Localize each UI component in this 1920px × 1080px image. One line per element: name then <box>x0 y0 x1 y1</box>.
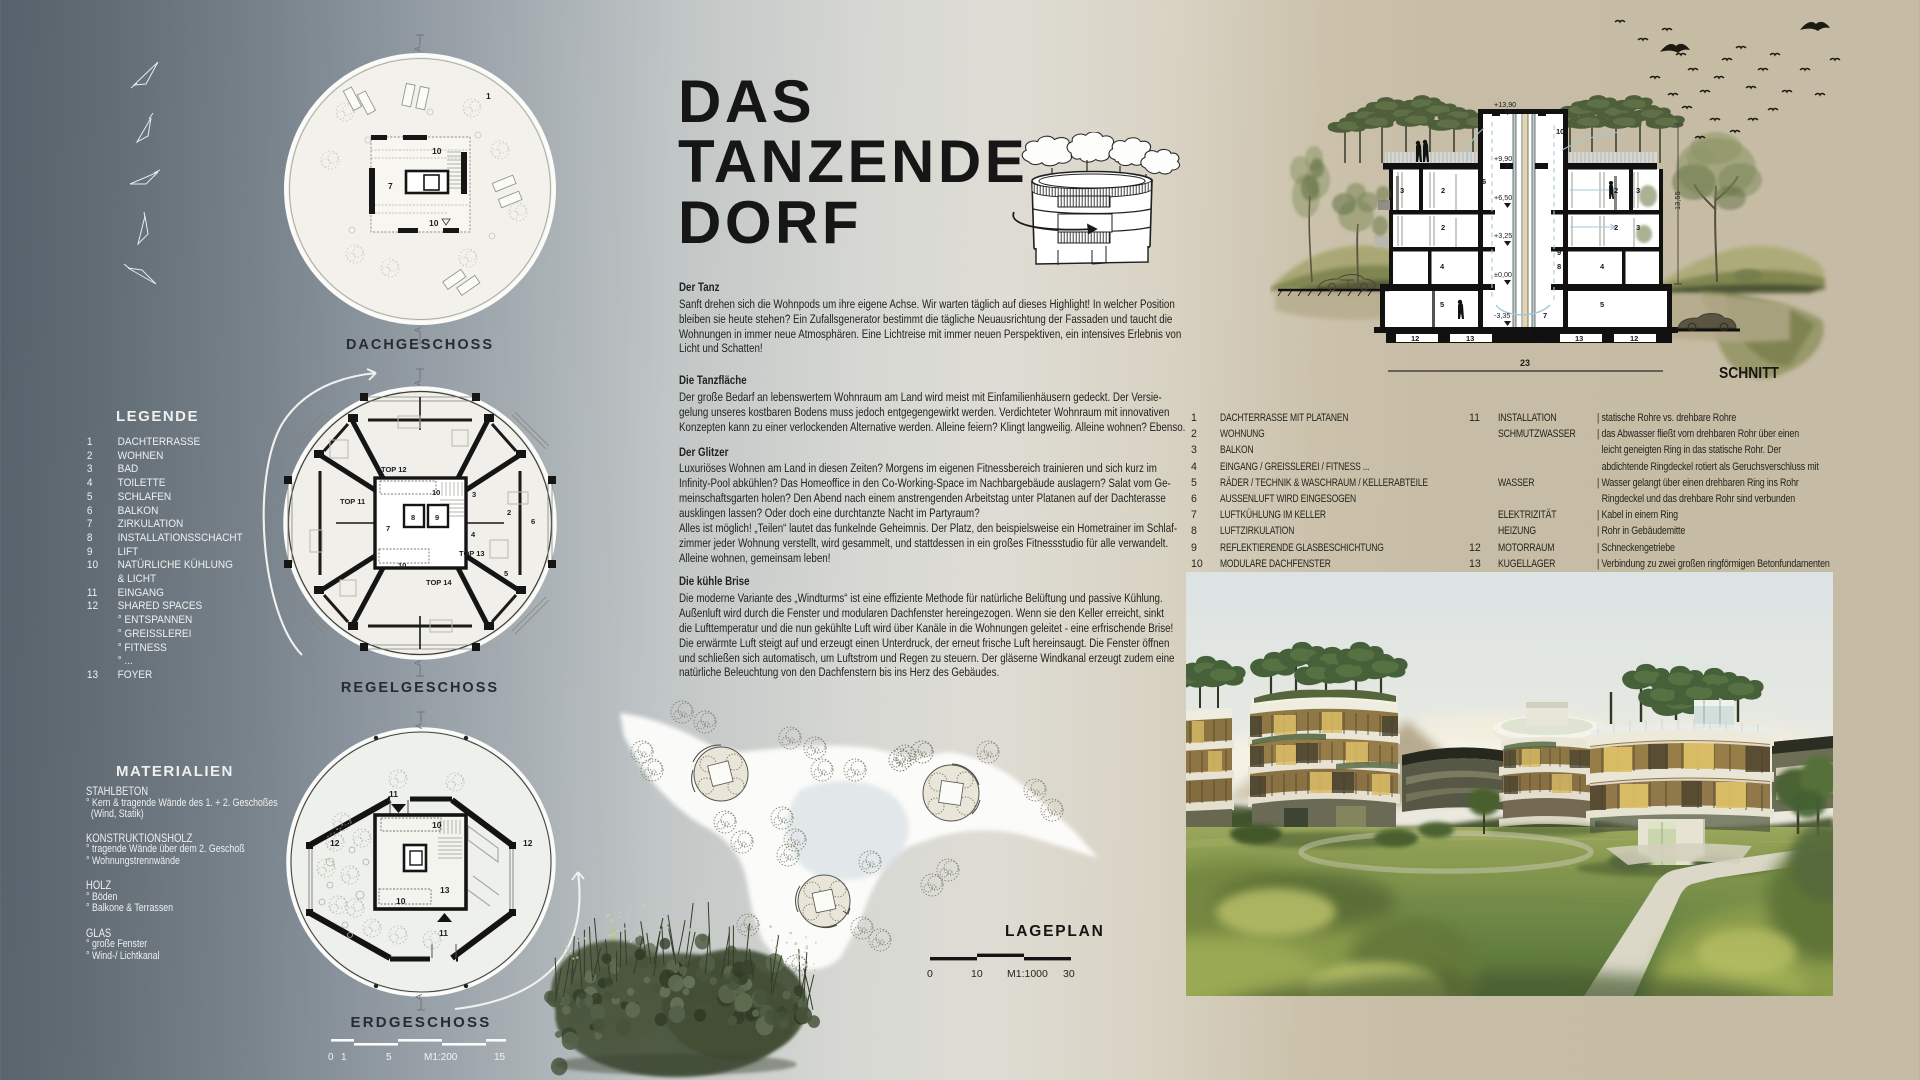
svg-text:10: 10 <box>1556 127 1564 136</box>
svg-text:9: 9 <box>435 513 439 522</box>
svg-text:REGELGESCHOSS: REGELGESCHOSS <box>341 680 499 696</box>
svg-text:30: 30 <box>1063 968 1075 980</box>
svg-text:TOP 11: TOP 11 <box>340 497 365 506</box>
svg-text:1: 1 <box>341 1052 347 1063</box>
svg-text:M1:200: M1:200 <box>424 1052 458 1063</box>
svg-text:A: A <box>414 994 424 1000</box>
svg-text:0: 0 <box>328 1052 334 1063</box>
svg-text:A: A <box>413 380 423 386</box>
svg-text:13: 13 <box>1466 334 1474 343</box>
svg-text:A: A <box>413 46 423 52</box>
svg-text:A: A <box>413 660 423 666</box>
svg-text:3: 3 <box>472 490 476 499</box>
svg-text:2: 2 <box>1614 223 1618 232</box>
svg-text:12: 12 <box>330 838 340 848</box>
svg-text:7: 7 <box>1543 311 1547 320</box>
svg-text:10: 10 <box>971 968 983 980</box>
svg-text:15: 15 <box>494 1052 506 1063</box>
svg-text:7: 7 <box>386 524 390 533</box>
svg-text:+6,50: +6,50 <box>1494 193 1512 202</box>
svg-text:11: 11 <box>439 928 448 938</box>
svg-text:3: 3 <box>1400 186 1404 195</box>
svg-text:13: 13 <box>440 885 450 895</box>
svg-text:12: 12 <box>1630 334 1638 343</box>
svg-text:TOP 14: TOP 14 <box>426 578 452 587</box>
svg-text:2: 2 <box>507 508 511 517</box>
svg-text:M1:1000: M1:1000 <box>1007 968 1048 980</box>
svg-text:5: 5 <box>504 569 508 578</box>
svg-text:7: 7 <box>388 181 393 191</box>
svg-text:10: 10 <box>398 561 406 570</box>
svg-text:5: 5 <box>1600 300 1604 309</box>
svg-text:0: 0 <box>927 968 933 980</box>
svg-text:+3,25: +3,25 <box>1494 231 1512 240</box>
svg-text:10: 10 <box>432 488 440 497</box>
svg-text:6: 6 <box>1482 177 1486 186</box>
svg-text:TOP 13: TOP 13 <box>459 549 485 558</box>
svg-text:2: 2 <box>1441 223 1445 232</box>
svg-text:12: 12 <box>1411 334 1419 343</box>
svg-text:ERDGESCHOSS: ERDGESCHOSS <box>351 1014 492 1031</box>
svg-text:8: 8 <box>411 513 415 522</box>
svg-text:10: 10 <box>432 820 442 830</box>
svg-text:+13,90: +13,90 <box>1494 100 1516 109</box>
svg-text:A: A <box>414 723 424 729</box>
svg-text:LAGEPLAN: LAGEPLAN <box>1005 923 1105 940</box>
svg-text:+9,90: +9,90 <box>1494 154 1512 163</box>
svg-text:10: 10 <box>429 218 439 228</box>
svg-text:10: 10 <box>432 146 442 156</box>
svg-text:11: 11 <box>389 789 398 799</box>
svg-text:23: 23 <box>1520 358 1530 368</box>
svg-text:10: 10 <box>396 896 406 906</box>
svg-text:3: 3 <box>1636 223 1640 232</box>
svg-text:2: 2 <box>1614 186 1618 195</box>
svg-text:13,55: 13,55 <box>1673 191 1682 210</box>
svg-text:3: 3 <box>1636 186 1640 195</box>
svg-text:SCHNITT: SCHNITT <box>1719 365 1779 382</box>
svg-text:9: 9 <box>1557 248 1561 257</box>
svg-text:8: 8 <box>1557 262 1561 271</box>
svg-text:TOP 12: TOP 12 <box>381 465 407 474</box>
svg-text:6: 6 <box>531 517 535 526</box>
svg-text:DACHGESCHOSS: DACHGESCHOSS <box>346 337 494 353</box>
svg-text:5: 5 <box>386 1052 392 1063</box>
svg-text:±0,00: ±0,00 <box>1494 270 1512 279</box>
svg-text:A: A <box>413 327 423 333</box>
svg-text:5: 5 <box>1440 300 1444 309</box>
svg-text:13: 13 <box>1575 334 1583 343</box>
svg-text:-3,35: -3,35 <box>1494 311 1510 320</box>
svg-text:12: 12 <box>523 838 533 848</box>
svg-text:1: 1 <box>486 91 491 101</box>
svg-text:2: 2 <box>1441 186 1445 195</box>
